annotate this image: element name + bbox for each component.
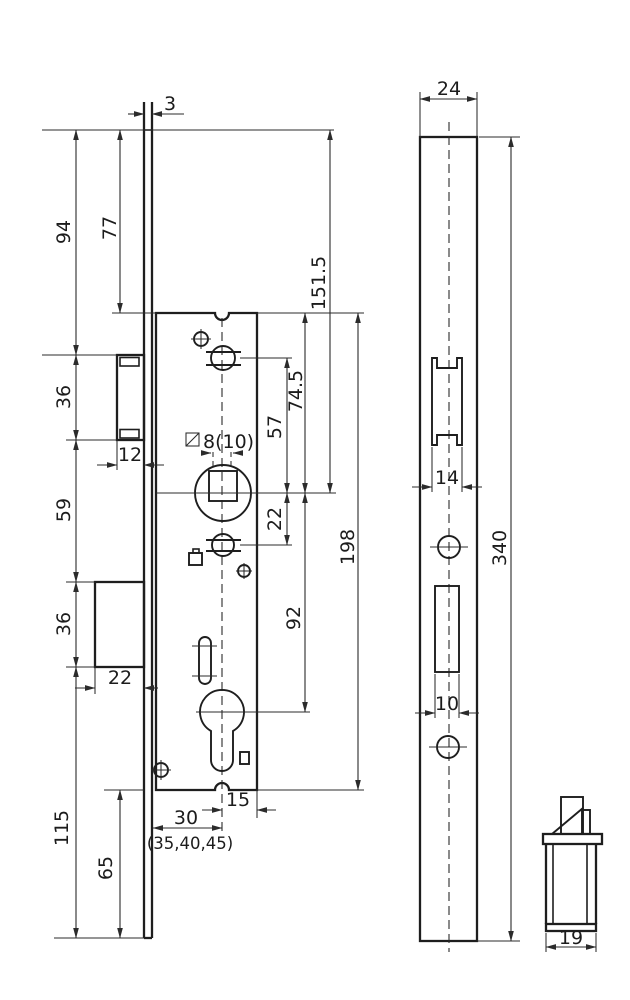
dim-label-115: 115 (51, 810, 73, 846)
dim-label-36-latch: 36 (53, 385, 75, 409)
front-dimension-labels: 3 94 77 151.5 36 12 59 74.5 57 22 198 92… (51, 93, 359, 880)
latch-flange (543, 834, 602, 844)
spindle-follower-hole (156, 465, 336, 521)
latch-body (546, 844, 596, 931)
spindle-square-label: 8(10) (203, 431, 254, 453)
dim-label-10: 10 (435, 693, 459, 715)
dim-label-19: 19 (559, 927, 583, 949)
dim-label-15: 15 (226, 789, 250, 811)
dim-label-24: 24 (437, 78, 461, 100)
dim-label-151-5: 151.5 (308, 256, 330, 310)
latch-head (561, 797, 583, 834)
latch-bolt-detail: 19 (543, 797, 602, 952)
dim-label-22-bolt: 22 (108, 667, 132, 689)
dim-label-65: 65 (95, 856, 117, 880)
small-rect-hole (240, 752, 249, 764)
dim-label-74-5: 74.5 (285, 370, 307, 412)
square-hole (189, 549, 202, 565)
latch-bevel (552, 808, 583, 834)
faceplate-face (420, 137, 477, 941)
spindle-square-callout: 8(10) (186, 431, 254, 470)
faceplate-edge (144, 102, 152, 938)
side-dimension-labels: 24 14 10 340 (435, 78, 511, 715)
deadbolt-front (95, 582, 144, 667)
dim-label-198: 198 (337, 529, 359, 565)
latch-bolt-front (117, 355, 144, 440)
drawing-sheet: 8(10) (0, 0, 630, 1000)
dim-label-3: 3 (164, 93, 176, 115)
faceplate-screw-hole-upper (430, 536, 468, 558)
screw-hole-top (191, 329, 211, 349)
faceplate-screw-hole-lower (429, 736, 467, 758)
dim-label-92: 92 (283, 606, 305, 630)
dim-label-30: 30 (174, 807, 198, 829)
front-view: 8(10) (42, 93, 364, 938)
lower-hub-hole (206, 534, 292, 556)
dim-label-backset-options: (35,40,45) (147, 834, 233, 853)
dim-label-22-hub: 22 (264, 507, 286, 531)
front-extension-lines (42, 130, 364, 938)
dim-label-340: 340 (489, 530, 511, 566)
dim-label-14: 14 (435, 467, 459, 489)
screw-hole-bottom (151, 760, 171, 780)
side-view: 24 14 10 340 (412, 78, 520, 952)
screw-hole-mid (236, 563, 252, 579)
dim-label-59: 59 (53, 498, 75, 522)
side-dimension-lines (412, 99, 511, 941)
latch-cutout (432, 358, 462, 445)
upper-hub-hole (206, 346, 292, 370)
side-extension-lines (420, 92, 520, 941)
mortise-lock-technical-drawing: 8(10) (0, 0, 630, 1000)
dim-label-36-bolt: 36 (53, 612, 75, 636)
deadbolt-cutout (435, 586, 459, 672)
dim-label-94: 94 (53, 220, 75, 244)
dim-label-12: 12 (118, 444, 142, 466)
euro-cylinder-hole (196, 690, 310, 771)
dim-label-77: 77 (99, 216, 121, 240)
adjustment-slot (192, 637, 217, 684)
dim-label-57: 57 (264, 415, 286, 439)
